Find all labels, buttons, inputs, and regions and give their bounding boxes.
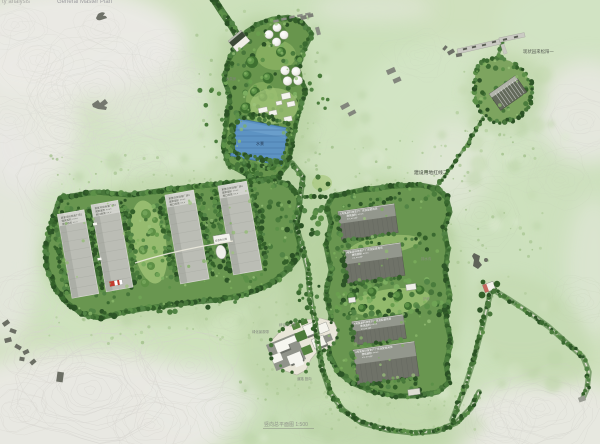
svg-text:竖向总平面图 1:500: 竖向总平面图 1:500 xyxy=(264,421,308,428)
svg-text:排水沟: 排水沟 xyxy=(421,256,432,261)
svg-text:水景: 水景 xyxy=(256,140,264,146)
svg-text:水泵房: 水泵房 xyxy=(226,76,237,81)
svg-text:现状园来松阳一: 现状园来松阳一 xyxy=(523,48,554,55)
svg-text:护坡: 护坡 xyxy=(423,296,430,301)
svg-text:ty analysis: ty analysis xyxy=(2,0,30,5)
svg-text:综合办公楼: 综合办公楼 xyxy=(279,322,297,327)
svg-text:道路 竖向: 道路 竖向 xyxy=(297,376,312,381)
svg-text:建设用地红线二: 建设用地红线二 xyxy=(414,169,448,176)
svg-text:General Master Plan: General Master Plan xyxy=(57,0,112,5)
svg-text:绿化景观带: 绿化景观带 xyxy=(252,329,270,334)
